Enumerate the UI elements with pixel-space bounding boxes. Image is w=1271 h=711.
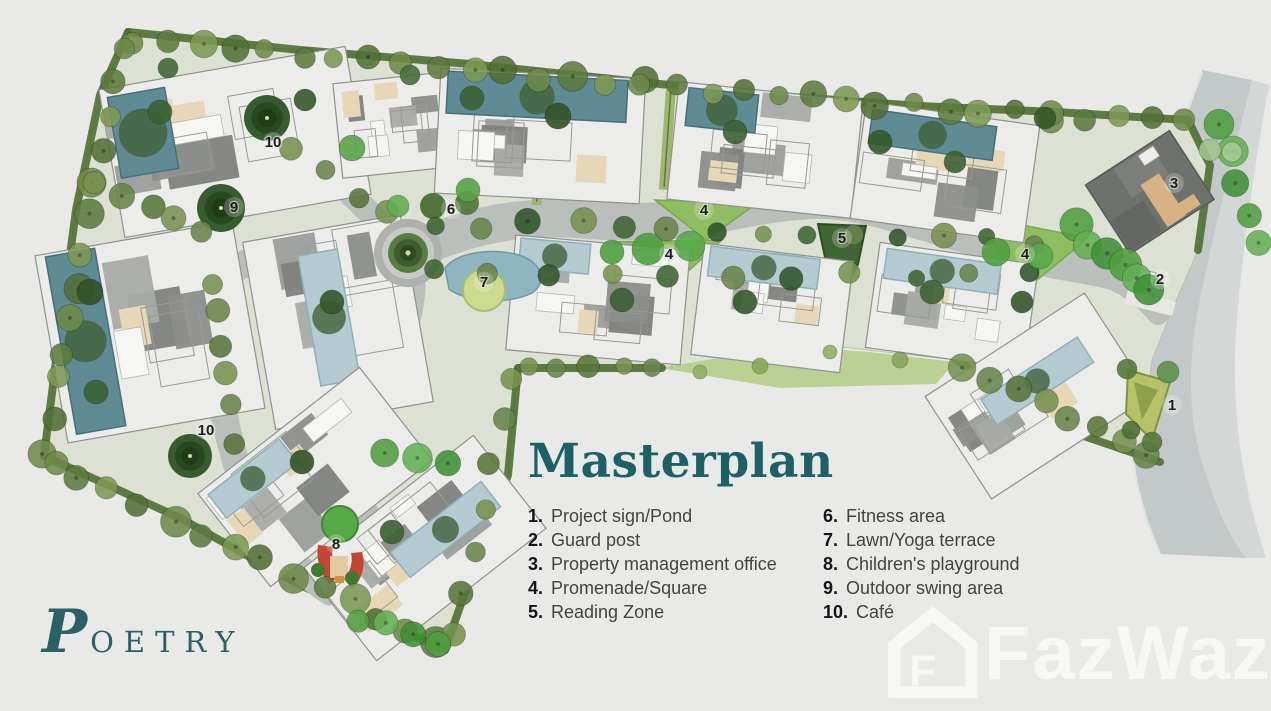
map-marker: 10 — [196, 420, 216, 440]
map-marker: 8 — [326, 534, 346, 554]
legend-item: 5.Reading Zone — [528, 600, 823, 624]
svg-text:3: 3 — [1170, 175, 1178, 192]
map-marker: 4 — [694, 200, 714, 220]
poetry-logo-text: OETRY — [90, 625, 244, 659]
page-title: Masterplan — [528, 436, 1088, 488]
legend-column-1: 1.Project sign/Pond 2.Guard post 3.Prope… — [528, 504, 823, 624]
legend-item: 7.Lawn/Yoga terrace — [823, 528, 1020, 552]
poetry-logo: POETRY — [42, 602, 245, 662]
svg-text:7: 7 — [480, 274, 488, 291]
map-marker: 3 — [1164, 173, 1184, 193]
svg-text:6: 6 — [447, 201, 455, 218]
map-marker: 1 — [1162, 395, 1182, 415]
fazwaz-watermark: F FazWaz — [884, 602, 1271, 698]
svg-text:F: F — [909, 648, 935, 696]
svg-text:5: 5 — [838, 230, 846, 247]
map-marker: 6 — [441, 199, 461, 219]
legend-item: 2.Guard post — [528, 528, 823, 552]
legend-item: 4.Promenade/Square — [528, 576, 823, 600]
fazwaz-watermark-text: FazWaz — [984, 610, 1271, 698]
legend-item: 1.Project sign/Pond — [528, 504, 823, 528]
map-marker: 7 — [474, 272, 494, 292]
map-marker: 5 — [832, 228, 852, 248]
svg-text:1: 1 — [1168, 397, 1176, 414]
poetry-logo-initial: P — [42, 602, 87, 662]
svg-text:2: 2 — [1156, 271, 1164, 288]
svg-text:4: 4 — [1021, 246, 1030, 263]
svg-text:4: 4 — [665, 246, 674, 263]
map-marker: 9 — [224, 197, 244, 217]
legend-panel: Masterplan 1.Project sign/Pond 2.Guard p… — [528, 436, 1088, 624]
legend-item: 8.Children's playground — [823, 552, 1020, 576]
svg-text:9: 9 — [230, 199, 238, 216]
map-marker: 10 — [263, 132, 283, 152]
legend-item: 9.Outdoor swing area — [823, 576, 1020, 600]
map-marker: 4 — [659, 244, 679, 264]
svg-text:8: 8 — [332, 536, 340, 553]
legend-item: 3.Property management office — [528, 552, 823, 576]
map-marker: 2 — [1150, 269, 1170, 289]
svg-text:4: 4 — [700, 202, 709, 219]
fazwaz-house-icon: F — [884, 602, 978, 698]
masterplan-image: 109674454321108 Masterplan 1.Project sig… — [0, 0, 1271, 711]
svg-text:10: 10 — [198, 422, 215, 439]
map-marker: 4 — [1015, 244, 1035, 264]
cafe-tree — [168, 434, 212, 478]
legend-item: 6.Fitness area — [823, 504, 1020, 528]
svg-text:10: 10 — [265, 134, 282, 151]
